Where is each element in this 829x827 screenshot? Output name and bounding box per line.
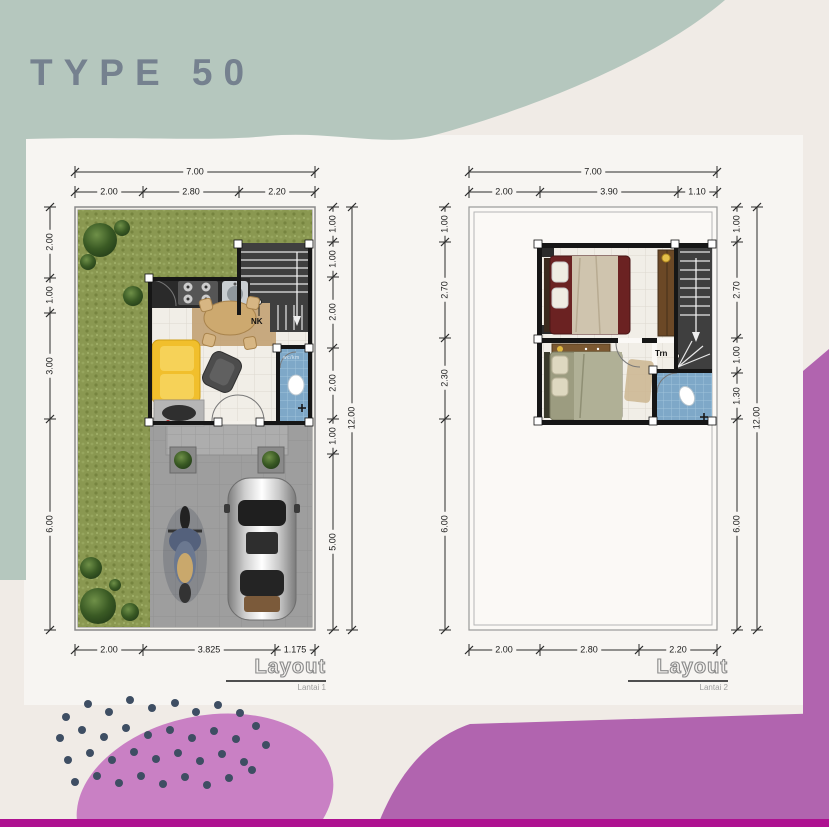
dimension-label: 1.00 [732,343,743,367]
dimension-label: 1.10 [685,187,709,198]
dimension-label: 1.00 [328,247,339,271]
dimension-label: 2.00 [328,300,339,324]
page-title: TYPE 50 [30,52,255,94]
dimension-label: 2.00 [97,187,121,198]
plan1-caption-sub: Lantai 1 [226,683,326,692]
stairs-up-label: NK [251,317,263,326]
dimension-label: 1.00 [440,212,451,236]
dimension-label: 6.00 [440,512,451,536]
dimension-label: 1.30 [732,384,743,408]
dimension-label: 3.825 [195,645,224,656]
dimension-label: 2.80 [577,645,601,656]
dimension-label: 1.00 [328,424,339,448]
stairs-down-label: Trn [655,349,667,358]
dimension-label: 2.00 [45,230,56,254]
dimension-label: 12.00 [347,404,358,433]
poster-canvas: TYPE 50 NK wc/km Trn Layout Lantai 1 Lay… [0,0,829,827]
plan2-caption: Layout Lantai 2 [628,656,728,692]
dimension-label: 2.70 [732,278,743,302]
dimension-label: 2.80 [179,187,203,198]
dimension-label: 1.175 [281,645,310,656]
dimension-label: 2.00 [328,371,339,395]
dimension-label: 1.00 [45,283,56,307]
dimension-label: 2.70 [440,278,451,302]
plan1-caption: Layout Lantai 1 [226,656,326,692]
dimension-label: 7.00 [183,167,207,178]
dimension-label: 1.00 [328,212,339,236]
dimension-label: 2.00 [492,645,516,656]
dimension-label: 12.00 [752,404,763,433]
dimension-label: 2.00 [492,187,516,198]
dimension-label: 2.20 [666,645,690,656]
dimension-label: 1.00 [732,212,743,236]
dimension-label: 6.00 [45,512,56,536]
dimension-label: 2.00 [97,645,121,656]
plan1-caption-title: Layout [226,656,326,682]
labels-layer: TYPE 50 NK wc/km Trn Layout Lantai 1 Lay… [0,0,829,827]
dimension-label: 2.30 [440,366,451,390]
dimension-label: 6.00 [732,512,743,536]
bathroom-label: wc/km [283,355,300,361]
dimension-label: 3.00 [45,354,56,378]
plan2-caption-title: Layout [628,656,728,682]
dimension-label: 7.00 [581,167,605,178]
dimension-label: 3.90 [597,187,621,198]
plan2-caption-sub: Lantai 2 [628,683,728,692]
dimension-label: 2.20 [265,187,289,198]
dimension-label: 5.00 [328,530,339,554]
